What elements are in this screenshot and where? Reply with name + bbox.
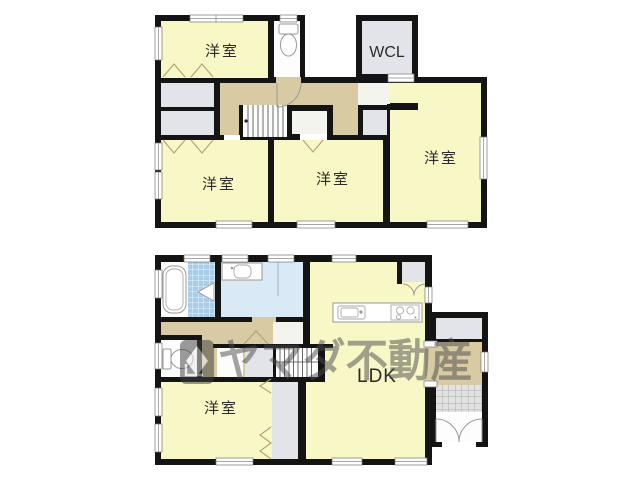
floorplan-svg: 洋室 WCL 洋室 洋室 洋室 — [0, 0, 640, 480]
room-label: 洋室 — [424, 150, 458, 167]
stairs-2f — [243, 105, 287, 137]
room-label: WCL — [369, 44, 405, 61]
closet-1f — [272, 382, 298, 459]
toilet-bowl-icon — [281, 34, 297, 56]
hallway-2f-strip — [333, 105, 358, 135]
door-gap — [224, 135, 240, 140]
vanity-sink-icon — [222, 263, 262, 280]
watermark-text: ヤマダ不動産 — [218, 335, 473, 386]
closet-2f-left-lower — [161, 111, 214, 135]
front-door-gap — [442, 442, 476, 447]
washroom-door-gap — [252, 317, 276, 322]
bedroom-1f — [161, 382, 272, 459]
kitchen-counter — [333, 303, 422, 322]
hallway-2f — [220, 83, 358, 105]
floorplan-image: 洋室 WCL 洋室 洋室 洋室 — [0, 0, 640, 480]
entrance-tile — [436, 385, 482, 412]
watermark: ヤマダ不動産 — [180, 335, 473, 386]
closet-2f-left-upper — [161, 83, 214, 107]
closet-2f-right — [363, 110, 387, 135]
upper-floor-plan: 洋室 WCL 洋室 洋室 洋室 — [155, 15, 487, 228]
door-gap — [300, 134, 327, 140]
anteroom-2f — [292, 111, 327, 134]
room-label: 洋室 — [316, 171, 350, 188]
doorway-bedroom-right — [383, 84, 390, 104]
room-label: 洋室 — [204, 400, 238, 417]
room-label: 洋室 — [202, 176, 236, 193]
yamada-logo-icon — [180, 340, 214, 384]
pantry-closet — [402, 262, 425, 282]
room-label: 洋室 — [205, 43, 239, 60]
toilet-tank-icon — [279, 24, 298, 34]
toilet-tank-icon — [163, 349, 171, 369]
